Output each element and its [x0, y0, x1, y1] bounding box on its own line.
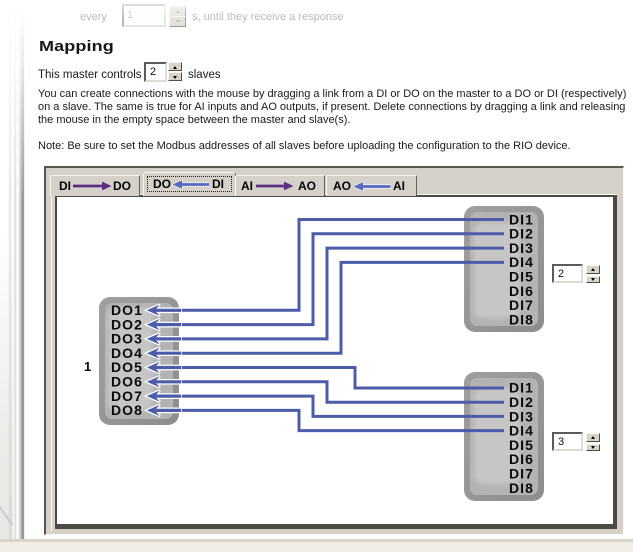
svg-text:DO8: DO8 — [111, 402, 143, 418]
svg-text:DI8: DI8 — [509, 480, 534, 496]
svg-text:1: 1 — [84, 359, 91, 374]
svg-text:DI8: DI8 — [509, 311, 534, 327]
